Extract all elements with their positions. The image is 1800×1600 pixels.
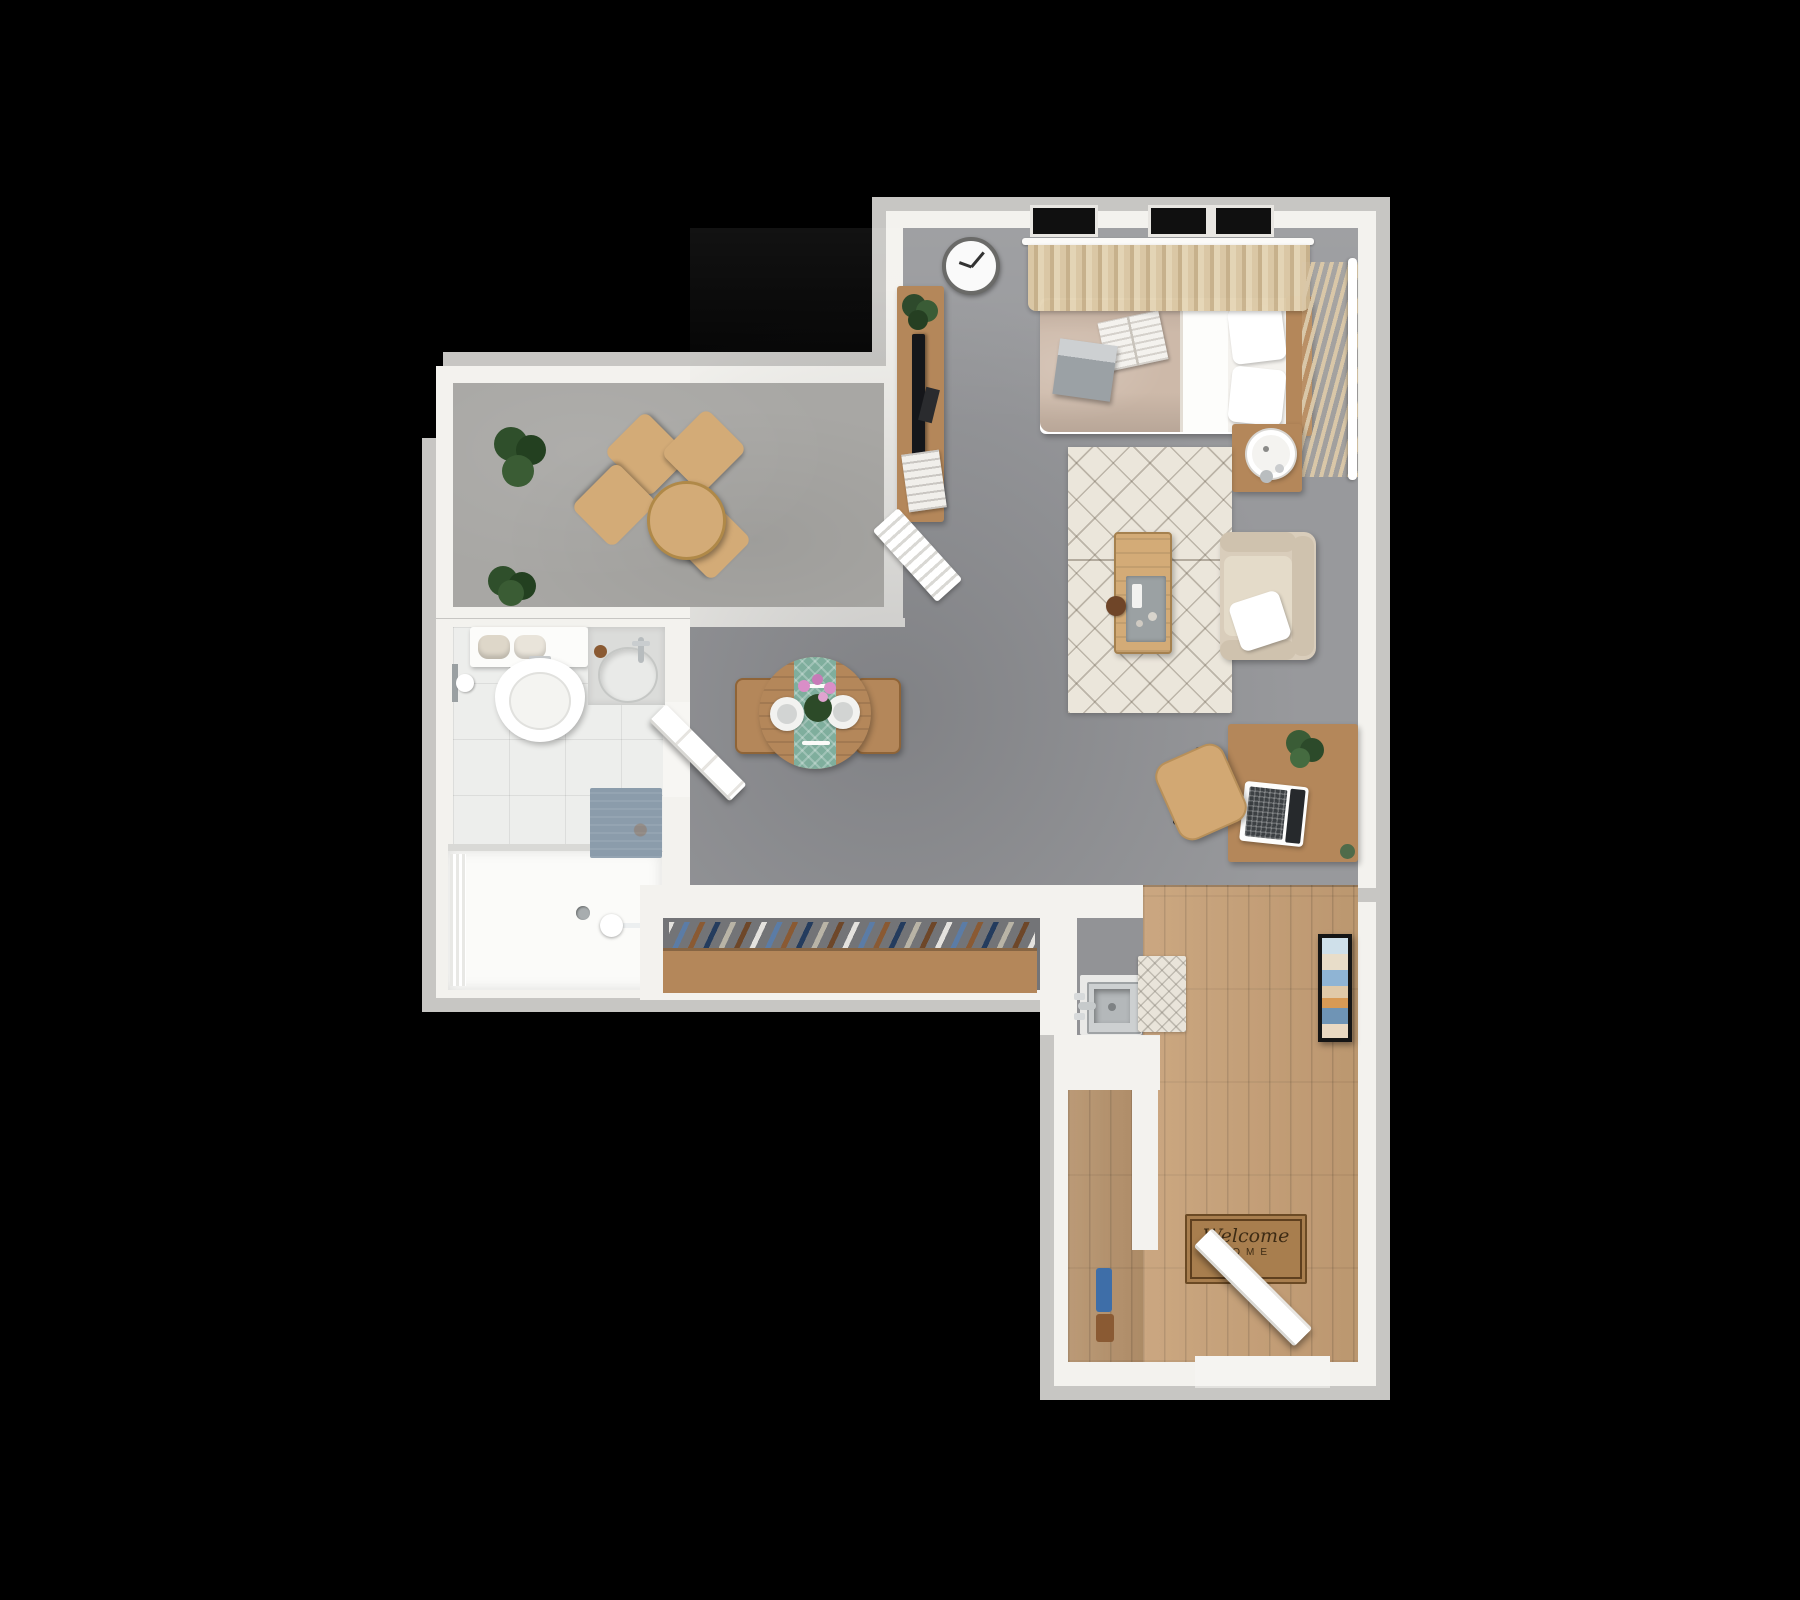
kitchen-faucet-spout (1078, 1002, 1096, 1010)
plate-inner (777, 704, 797, 724)
console-plant (900, 290, 942, 334)
bathtub-ridges (450, 854, 466, 986)
laptop (1239, 781, 1309, 847)
cutlery-bottom (802, 741, 830, 745)
toilet-paper-holder (452, 664, 474, 702)
laptop-screen (1285, 789, 1306, 844)
wall-clock (942, 237, 1000, 295)
window-top-left (1030, 205, 1098, 237)
balcony-plant-top (492, 425, 554, 493)
magazine-stack (901, 450, 947, 513)
tray-candle (1148, 612, 1157, 621)
curtains (1028, 245, 1310, 311)
bed-pillow-top (1227, 303, 1287, 365)
desk-succulent (1340, 844, 1355, 859)
entry-rug (1138, 956, 1186, 1032)
wall-bath-divider-upper (663, 619, 690, 705)
wall-nook-bottom (1054, 1035, 1160, 1090)
floorplan-scene: Welcome HOME (0, 0, 1800, 1600)
flower-vase (796, 678, 840, 728)
bed-pillow-bottom (1227, 365, 1287, 426)
clock-hand-hour (959, 261, 972, 268)
toilet (495, 658, 585, 742)
nightstand-decor-small (1275, 464, 1284, 473)
entry-threshold (1195, 1356, 1330, 1388)
flower-pink (798, 680, 810, 692)
kitchen-faucet-handle-bottom (1074, 1013, 1085, 1020)
table-lamp (1247, 430, 1295, 478)
shower-head (600, 914, 623, 937)
tray-candle-small (1136, 620, 1143, 627)
wall-storage-partition (1132, 1090, 1158, 1250)
tissue-box (1052, 338, 1117, 402)
storage-item-brown (1096, 1314, 1114, 1342)
paper-roll (456, 674, 474, 692)
window-top-right (1148, 205, 1274, 237)
bathtub-drain (576, 906, 590, 920)
balcony-plant-bottom (488, 566, 546, 608)
wall-art-frame (1318, 934, 1352, 1042)
kitchen-faucet-handle-top (1074, 993, 1085, 1000)
balcony-table (647, 481, 726, 560)
flower-pink (812, 674, 823, 685)
armchair (1220, 532, 1316, 660)
bed (1040, 298, 1312, 434)
plant-leaf (908, 310, 928, 330)
plant-leaf (1290, 748, 1310, 768)
coffee-table (1114, 532, 1172, 654)
kitchen-sink-drain (1108, 1003, 1116, 1011)
wall-closet-left (640, 918, 663, 1000)
wallface-hall-top (690, 618, 905, 627)
office-chair (1148, 744, 1248, 840)
plant-leaf (498, 580, 524, 606)
storage-item-blue (1096, 1268, 1112, 1312)
wall-closet-right-chunk (1040, 885, 1077, 1035)
remote-control (1132, 584, 1142, 608)
nightstand-decor-large (1260, 470, 1273, 483)
curtain-rod (1022, 238, 1314, 245)
clock-hand-minute (970, 251, 985, 267)
closet-interior (663, 918, 1040, 990)
bed-sheet (1180, 300, 1233, 432)
wood-bowl (1106, 596, 1126, 616)
armchair-armrest-top (1220, 532, 1296, 552)
plant-leaf (502, 455, 534, 487)
bathtub (448, 850, 662, 990)
laptop-keyboard (1245, 786, 1288, 840)
towel-roll-left (478, 635, 510, 659)
toilet-seat (509, 672, 571, 730)
kitchen-sink-plinth (1080, 975, 1142, 1035)
blinds-track (1348, 258, 1357, 480)
office-chair-seat (1150, 739, 1252, 846)
desk-plant (1282, 726, 1326, 774)
bathroom-vanity (588, 627, 665, 705)
coffee-table-tray (1126, 576, 1166, 642)
lamp-finial (1263, 446, 1269, 452)
closet-rod (663, 948, 1037, 993)
vanity-faucet-handles (632, 641, 650, 646)
vanity-sink (598, 647, 658, 703)
soap-dish (594, 645, 607, 658)
bath-mat (590, 788, 662, 858)
armchair-back (1292, 536, 1314, 656)
flower-pink (818, 692, 828, 702)
wall-art-canvas (1322, 938, 1348, 1038)
